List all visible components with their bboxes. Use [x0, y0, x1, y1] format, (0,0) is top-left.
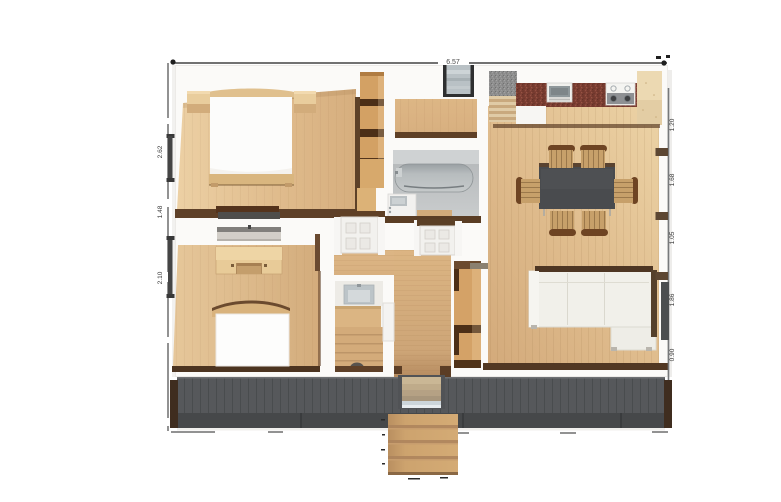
svg-text:2.10: 2.10 — [157, 271, 164, 284]
svg-text:6.57: 6.57 — [446, 59, 460, 66]
svg-text:1.05: 1.05 — [669, 231, 676, 244]
svg-text:2.62: 2.62 — [157, 145, 164, 158]
svg-text:1.48: 1.48 — [157, 205, 164, 218]
svg-text:1.86: 1.86 — [669, 293, 676, 306]
svg-text:0.90: 0.90 — [669, 348, 676, 361]
svg-text:1.20: 1.20 — [669, 118, 676, 131]
svg-text:1.68: 1.68 — [669, 173, 676, 186]
